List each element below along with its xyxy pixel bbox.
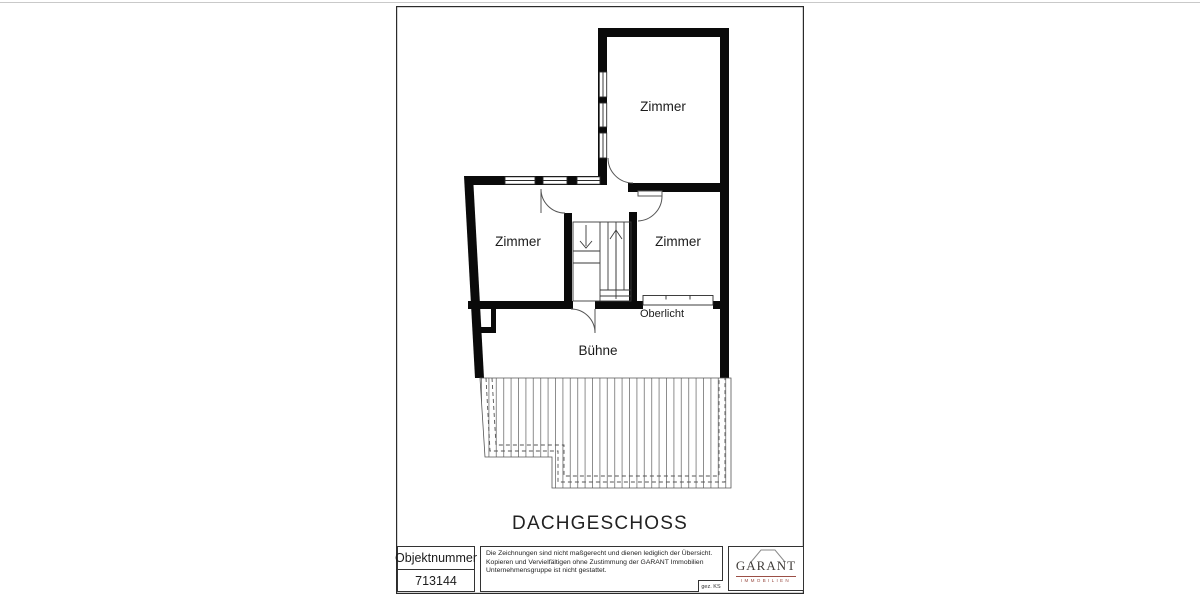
wall-middle-bottom-right: [713, 301, 729, 309]
logo-box: GARANT IMMOBILIEN: [728, 546, 804, 591]
garant-logo: GARANT IMMOBILIEN: [729, 547, 803, 590]
room-label-buehne: Bühne: [578, 343, 617, 358]
logo-subtitle: IMMOBILIEN: [729, 578, 803, 583]
chimney-wall-bottom: [481, 327, 496, 333]
wall-stair-right: [629, 212, 637, 301]
wall-middle-bottom-center: [595, 301, 643, 309]
logo-name: GARANT: [729, 558, 803, 574]
disclaimer-line-3: Unternehmensgruppe ist nicht gestattet.: [486, 567, 717, 576]
skylight-label: Oberlicht: [640, 308, 684, 320]
room-label-zimmer-right: Zimmer: [655, 234, 701, 249]
drawn-by-box: gez. KS: [698, 580, 723, 592]
logo-rule: [736, 576, 796, 577]
floor-title: DACHGESCHOSS: [512, 513, 688, 535]
page-top-rule: [0, 2, 1200, 3]
chimney-wall-right: [491, 309, 496, 328]
disclaimer-line-2: Kopieren und Vervielfältigen ohne Zustim…: [486, 559, 717, 568]
room-label-zimmer-top: Zimmer: [640, 99, 686, 114]
disclaimer-line-1: Die Zeichnungen sind nicht maßgerecht un…: [486, 550, 717, 559]
object-number-box: Objektnummer 713144: [397, 546, 475, 592]
object-number-label: Objektnummer: [398, 547, 474, 570]
wall-top-room-top: [598, 28, 729, 37]
door-leaf-right-room: [638, 191, 662, 196]
plan-sheet: Zimmer Zimmer Zimmer Bühne Oberlicht DAC…: [396, 6, 804, 594]
skylight-window: [643, 296, 713, 306]
wall-right-outer: [720, 28, 729, 378]
disclaimer-box: Die Zeichnungen sind nicht maßgerecht un…: [480, 546, 723, 592]
object-number-value: 713144: [398, 570, 474, 592]
wall-stair-left: [564, 213, 572, 301]
room-label-zimmer-left: Zimmer: [495, 234, 541, 249]
wall-middle-bottom-left: [468, 301, 573, 309]
floorplan-drawing: [396, 6, 804, 594]
